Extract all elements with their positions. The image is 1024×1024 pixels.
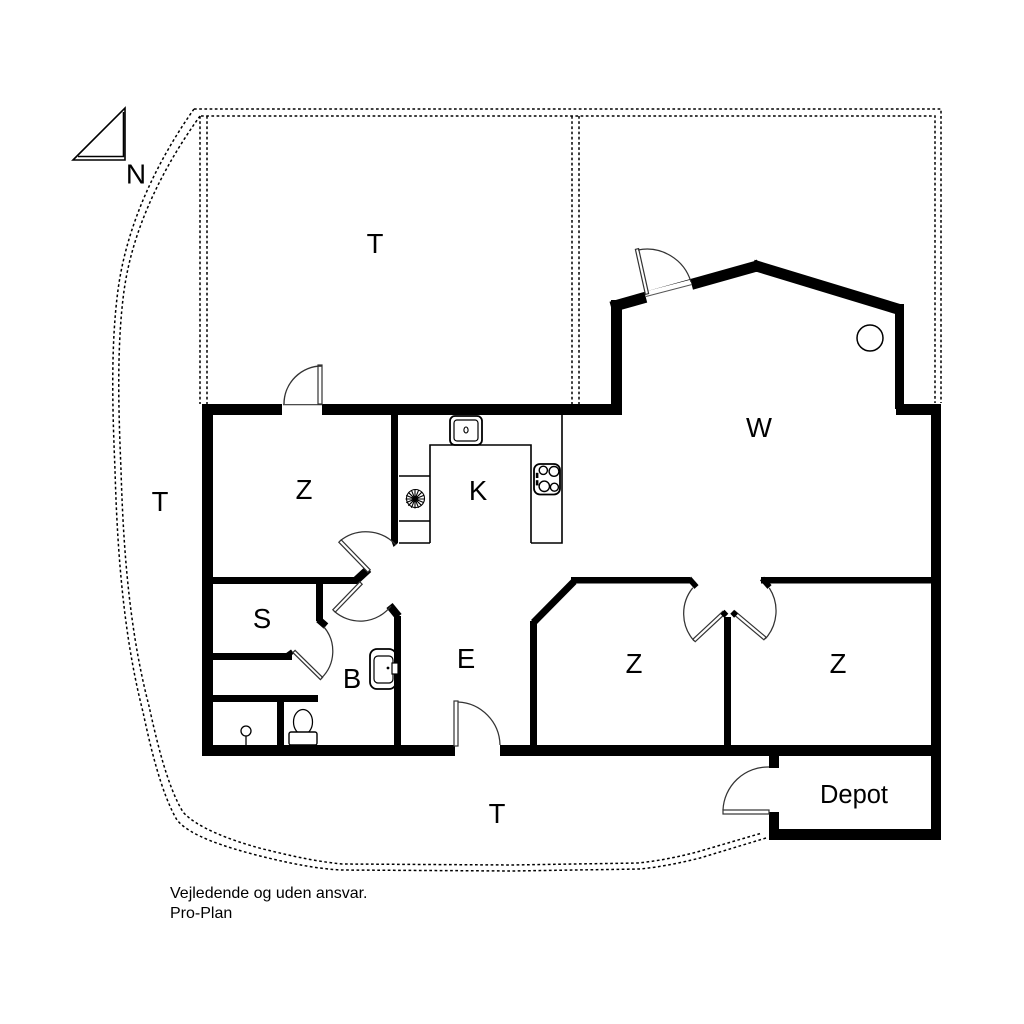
svg-text:T: T bbox=[152, 486, 169, 517]
svg-text:B: B bbox=[343, 663, 361, 694]
svg-text:Vejledende og uden ansvar.: Vejledende og uden ansvar. bbox=[170, 885, 368, 902]
svg-text:Depot: Depot bbox=[820, 781, 888, 809]
svg-text:K: K bbox=[469, 475, 488, 506]
svg-text:W: W bbox=[746, 412, 772, 443]
svg-text:T: T bbox=[489, 798, 506, 829]
svg-text:Z: Z bbox=[830, 648, 847, 679]
svg-text:Z: Z bbox=[296, 474, 313, 505]
svg-text:S: S bbox=[253, 603, 271, 634]
svg-text:Pro-Plan: Pro-Plan bbox=[170, 905, 232, 922]
svg-text:E: E bbox=[457, 643, 475, 674]
svg-text:Z: Z bbox=[626, 648, 643, 679]
svg-text:T: T bbox=[367, 228, 384, 259]
svg-text:N: N bbox=[126, 159, 146, 190]
